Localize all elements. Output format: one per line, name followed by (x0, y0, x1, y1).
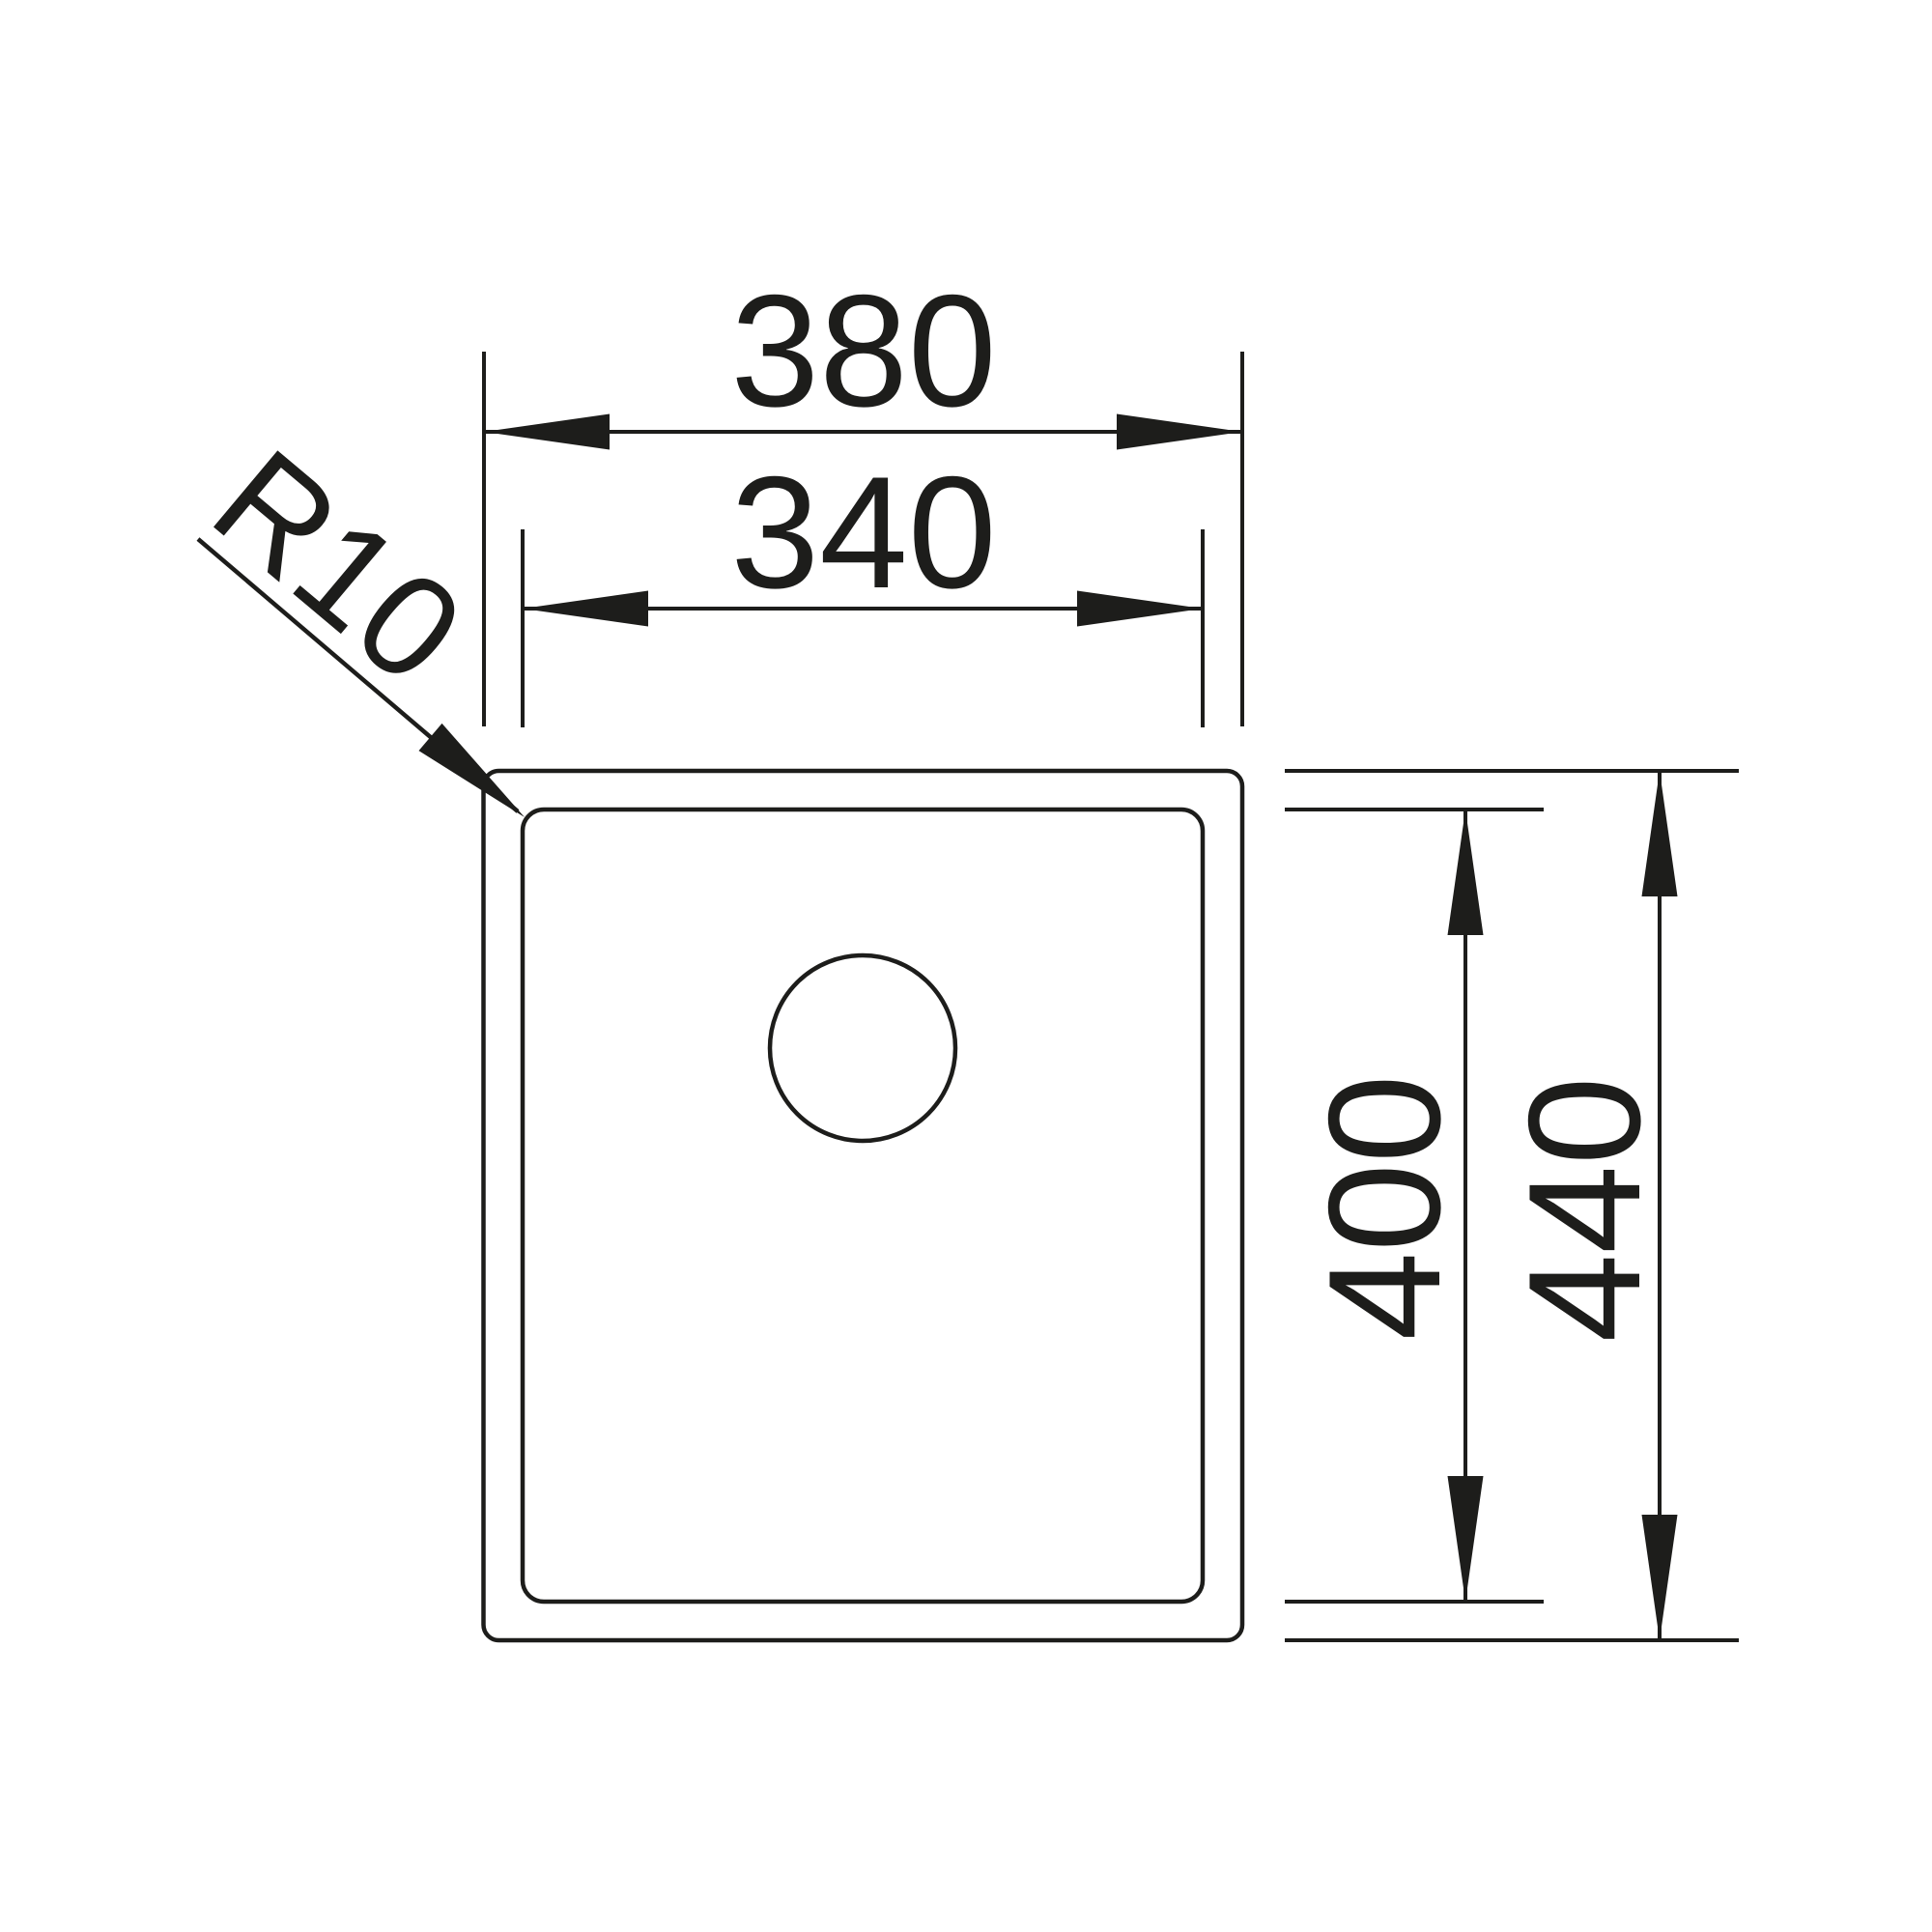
arrow-right-icon (1117, 414, 1242, 450)
inner-width-value: 340 (730, 443, 996, 621)
outer-width-value: 380 (730, 262, 996, 440)
arrow-down-icon (1642, 1515, 1678, 1640)
arrow-up-icon (1448, 810, 1484, 935)
drain-hole-circle (770, 955, 955, 1141)
arrow-left-icon (484, 414, 610, 450)
corner-radius-callout: R10 (185, 418, 525, 817)
dimension-inner-width: 340 (523, 443, 1203, 727)
outer-height-value: 440 (1495, 1076, 1673, 1342)
arrow-left-icon (523, 591, 648, 627)
sink-plan-view (484, 771, 1243, 1640)
corner-radius-value: R10 (185, 418, 493, 714)
sink-outer-rim (484, 771, 1243, 1640)
technical-drawing-canvas: 380 340 400 440 (0, 0, 1932, 1932)
arrow-right-icon (1077, 591, 1203, 627)
sink-dimension-drawing: 380 340 400 440 (0, 0, 1932, 1932)
arrow-down-icon (1448, 1476, 1484, 1602)
arrow-up-icon (1642, 771, 1678, 896)
sink-bowl-outline (523, 810, 1203, 1602)
inner-height-value: 400 (1295, 1074, 1473, 1340)
